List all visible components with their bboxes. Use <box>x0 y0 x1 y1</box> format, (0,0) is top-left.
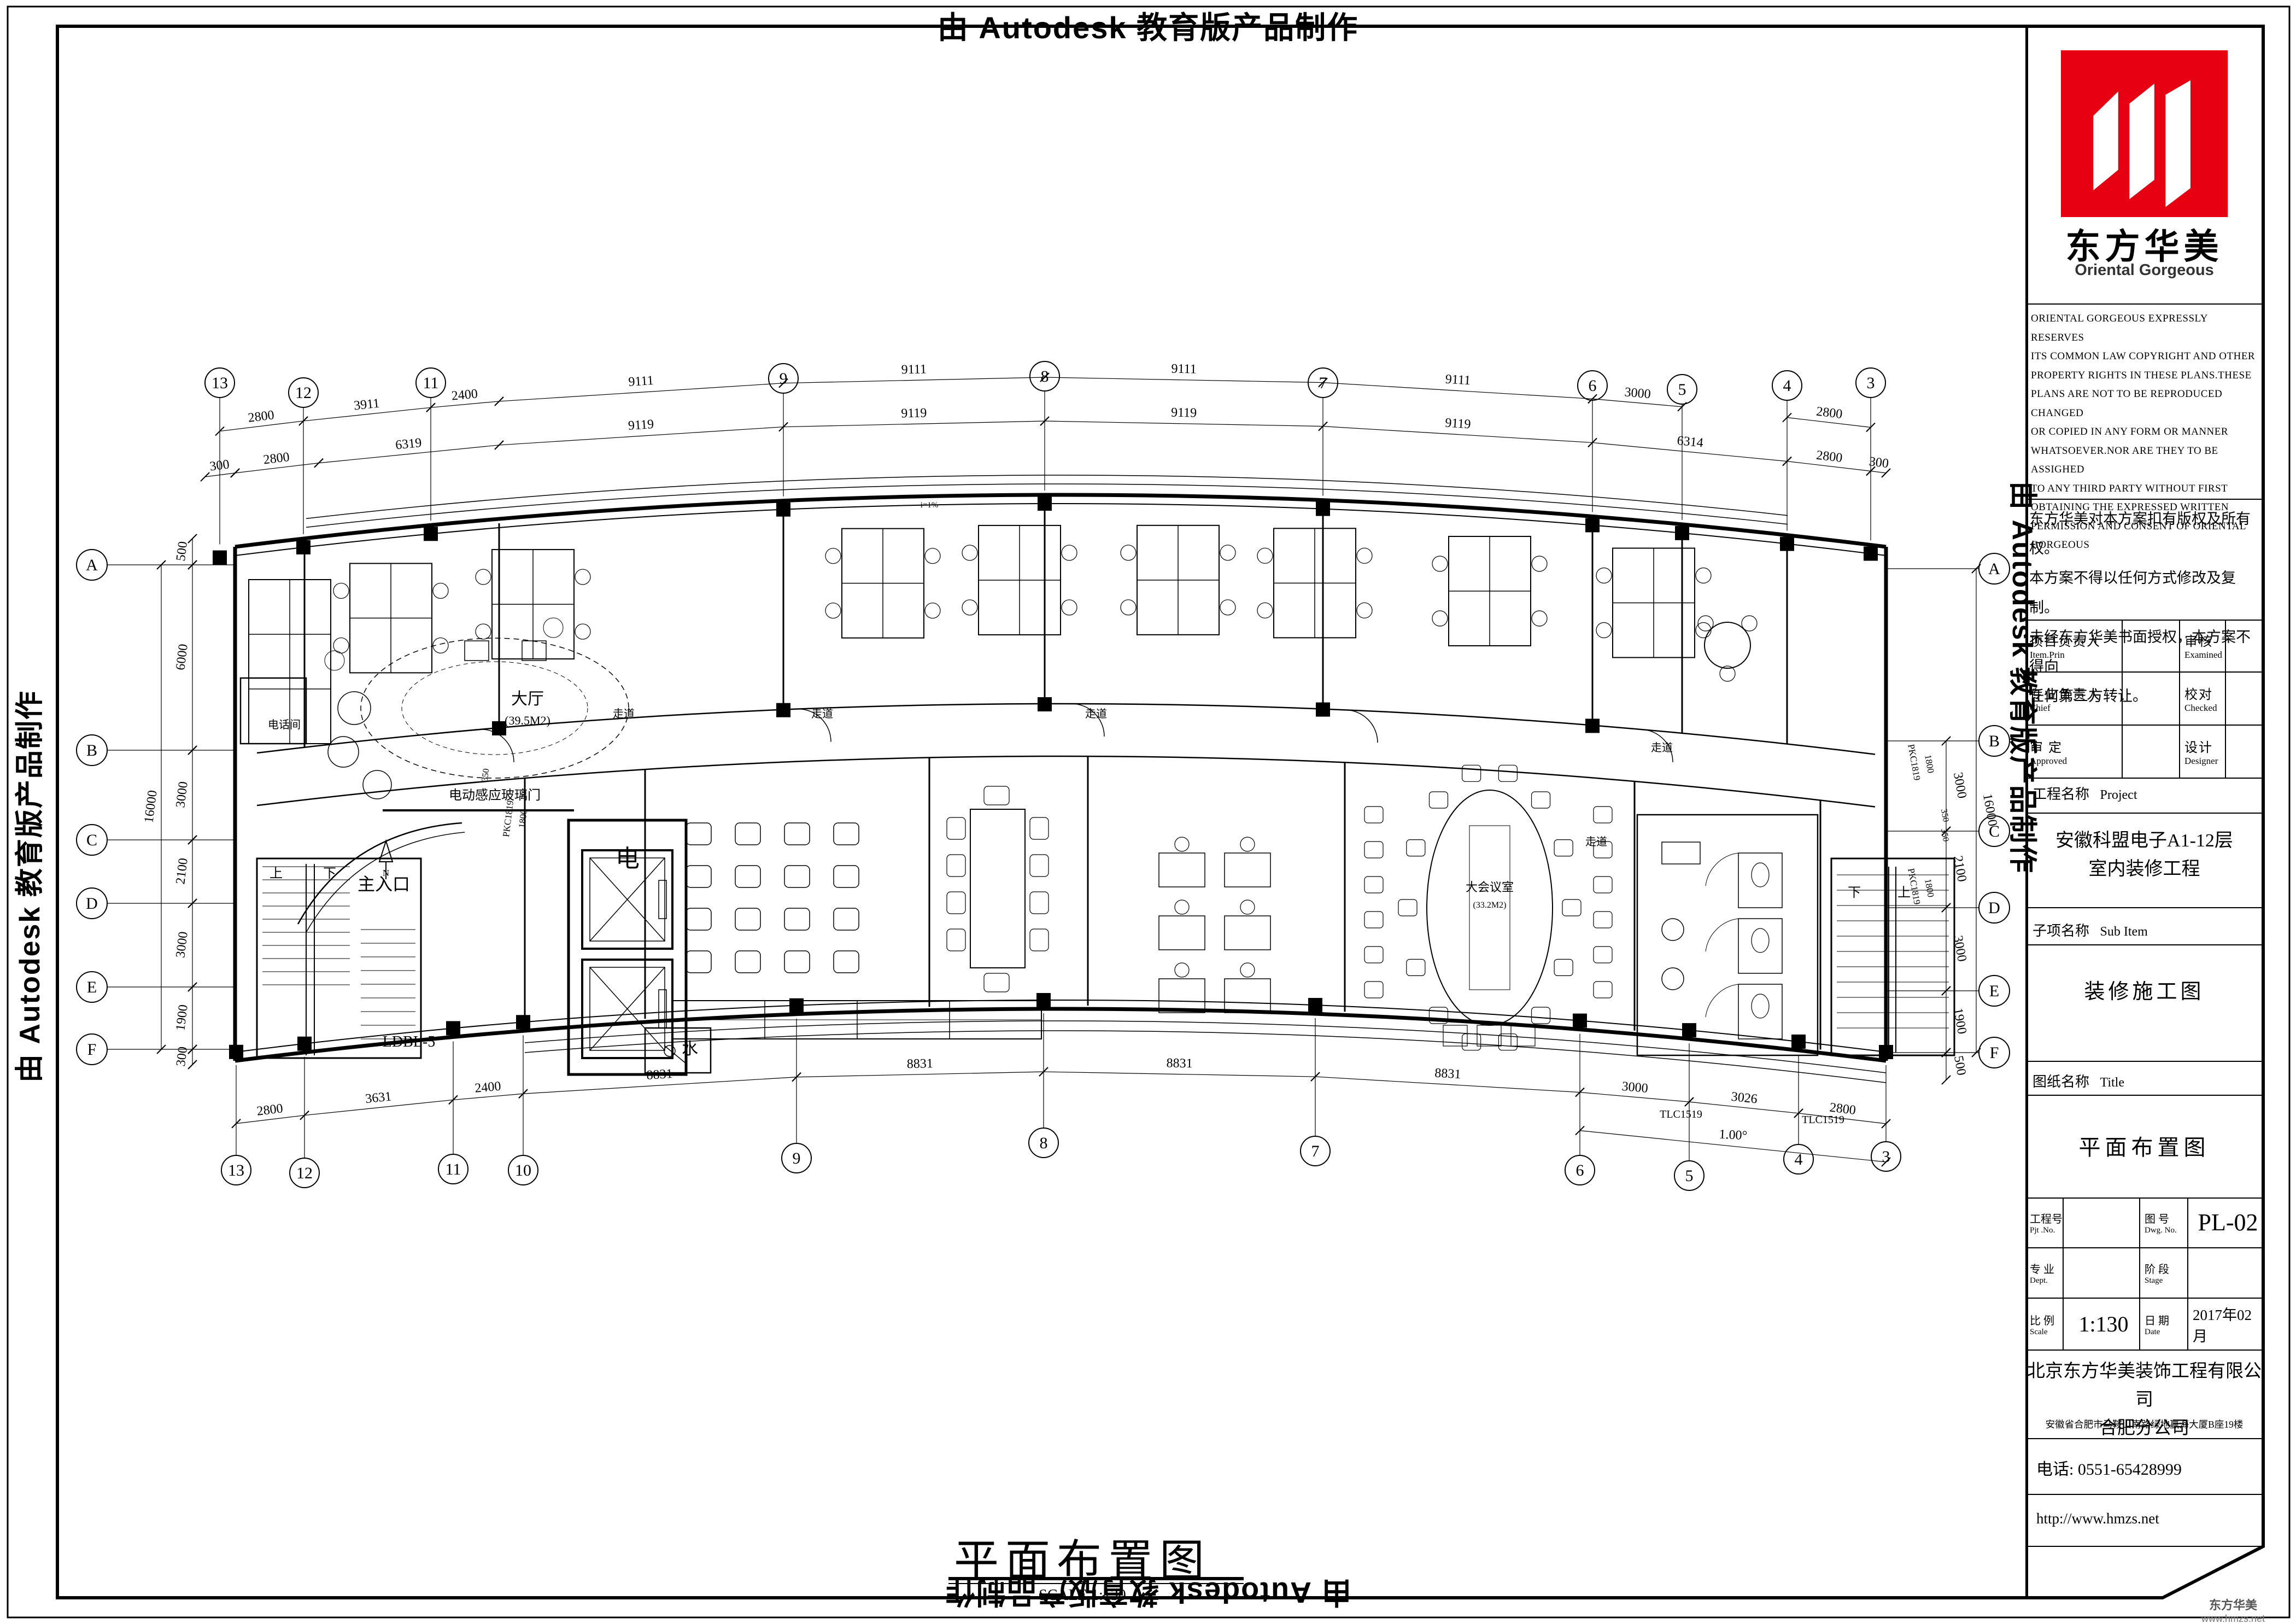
svg-text:9119: 9119 <box>901 406 927 420</box>
svg-text:4: 4 <box>1783 377 1791 395</box>
company-phone: 电话: 0551-65428999 <box>2036 1456 2182 1480</box>
svg-text:1900: 1900 <box>173 1004 191 1032</box>
svg-text:3000: 3000 <box>1951 771 1969 799</box>
svg-text:LDBL-5: LDBL-5 <box>383 1033 435 1050</box>
svg-text:2800: 2800 <box>247 408 275 425</box>
svg-text:B: B <box>1989 732 2000 750</box>
svg-text:9119: 9119 <box>628 417 654 433</box>
svg-text:5: 5 <box>1678 381 1686 399</box>
dept-stage-row: 专 业Dept. 阶 段Stage <box>2025 1248 2263 1299</box>
project-name: 安徽科盟电子A1-12层 室内装修工程 <box>2025 827 2263 884</box>
title-underline <box>948 1577 1244 1580</box>
svg-text:走道: 走道 <box>811 708 833 720</box>
furniture <box>249 525 1757 1050</box>
svg-text:电: 电 <box>616 845 640 872</box>
floor-plan: 1312119876543131211109876543ABCDEFABCDEF… <box>0 0 2296 1624</box>
scale-value: 1:130 <box>2064 1299 2140 1350</box>
logo-mark-icon <box>2061 50 2228 217</box>
svg-text:11: 11 <box>446 1160 461 1178</box>
company-logo <box>2061 50 2228 217</box>
dwg-no-row: 工程号Pjt .No. 图 号Dwg. No. PL-02 <box>2025 1197 2263 1248</box>
subitem-label: 子项名称 Sub Item <box>2033 920 2148 940</box>
svg-text:走道: 走道 <box>1085 708 1107 720</box>
company-address: 安徽省合肥市马鞍山南路绿地赢海大厦B座19楼 <box>2025 1417 2263 1431</box>
svg-text:300: 300 <box>1868 454 1889 471</box>
svg-text:E: E <box>87 978 97 996</box>
svg-text:2100: 2100 <box>1951 855 1969 883</box>
svg-text:i=1%: i=1% <box>921 501 939 510</box>
svg-text:2800: 2800 <box>256 1101 284 1119</box>
svg-text:上: 上 <box>1897 885 1911 900</box>
svg-text:PKC1819: PKC1819 <box>1906 743 1922 781</box>
svg-text:6: 6 <box>1576 1161 1584 1179</box>
svg-text:3000: 3000 <box>1624 385 1651 401</box>
svg-text:(39.5M2): (39.5M2) <box>505 714 550 727</box>
svg-text:9119: 9119 <box>1445 416 1472 432</box>
svg-text:300: 300 <box>174 1046 190 1067</box>
svg-text:1800: 1800 <box>1923 878 1936 898</box>
svg-text:3000: 3000 <box>1951 934 1969 963</box>
svg-text:大会议室: 大会议室 <box>1466 880 1514 894</box>
svg-text:9111: 9111 <box>901 362 927 377</box>
svg-text:PKC1819: PKC1819 <box>501 800 516 838</box>
svg-text:350: 350 <box>1939 808 1951 823</box>
svg-text:2100: 2100 <box>173 857 191 885</box>
svg-text:A: A <box>1988 560 2000 578</box>
svg-text:3: 3 <box>1882 1148 1890 1166</box>
svg-text:9: 9 <box>780 370 788 388</box>
svg-text:8831: 8831 <box>1166 1056 1192 1071</box>
svg-text:1800: 1800 <box>1923 754 1936 774</box>
svg-text:3000: 3000 <box>173 781 191 809</box>
svg-text:1900: 1900 <box>1951 1007 1969 1035</box>
svg-text:电话间: 电话间 <box>268 718 301 731</box>
svg-text:下: 下 <box>323 867 336 881</box>
svg-text:8831: 8831 <box>907 1056 934 1071</box>
svg-text:6319: 6319 <box>395 436 422 453</box>
svg-text:12: 12 <box>295 384 312 402</box>
svg-text:7: 7 <box>1311 1142 1320 1160</box>
company-website: http://www.hmzs.net <box>2036 1510 2159 1527</box>
svg-text:6314: 6314 <box>1677 434 1704 450</box>
svg-text:A: A <box>86 556 98 574</box>
date-value: 2017年02月 <box>2188 1299 2263 1350</box>
svg-text:2800: 2800 <box>262 450 290 468</box>
personnel-table: 项目负责人Item.Prin 审核Examined 专业负责人Chief 校对C… <box>2025 620 2263 775</box>
corner-brand: 东方华美 www.hmzs.net <box>2178 1596 2288 1624</box>
svg-text:D: D <box>1988 899 2000 917</box>
svg-text:走道: 走道 <box>1585 836 1607 848</box>
svg-text:D: D <box>86 895 98 913</box>
svg-text:8831: 8831 <box>1434 1066 1461 1082</box>
svg-text:1800: 1800 <box>517 809 529 828</box>
svg-text:大厅: 大厅 <box>511 690 544 708</box>
svg-text:B: B <box>86 741 97 760</box>
svg-text:2400: 2400 <box>451 387 478 403</box>
svg-text:2400: 2400 <box>474 1079 501 1096</box>
svg-text:5: 5 <box>1685 1167 1694 1185</box>
svg-text:13: 13 <box>228 1161 244 1179</box>
svg-text:500: 500 <box>174 541 190 562</box>
svg-text:(33.2M2): (33.2M2) <box>1473 901 1507 910</box>
drawing-number: PL-02 <box>2188 1197 2263 1247</box>
washrooms <box>1637 815 1818 1055</box>
svg-text:300: 300 <box>209 457 230 474</box>
svg-text:12: 12 <box>296 1164 313 1182</box>
svg-text:10: 10 <box>515 1161 531 1179</box>
subitem-value: 装修施工图 <box>2025 974 2263 1004</box>
drawing-scale-note: SCALE 1:130 <box>929 1587 1235 1604</box>
svg-text:2800: 2800 <box>1815 405 1843 422</box>
columns <box>213 496 1893 1059</box>
svg-text:上: 上 <box>270 866 283 881</box>
svg-text:3631: 3631 <box>365 1089 392 1106</box>
svg-text:11: 11 <box>423 374 439 392</box>
scale-date-row: 比 例Scale 1:130 日 期Date 2017年02月 <box>2025 1299 2263 1351</box>
sheet-label: 图纸名称 Title <box>2033 1071 2124 1091</box>
svg-text:F: F <box>87 1041 97 1059</box>
svg-text:走道: 走道 <box>613 708 635 720</box>
svg-text:3026: 3026 <box>1731 1090 1758 1107</box>
svg-text:16000: 16000 <box>1980 792 2000 827</box>
svg-text:350: 350 <box>481 768 491 782</box>
svg-text:8831: 8831 <box>646 1067 673 1083</box>
svg-text:N: N <box>383 868 389 878</box>
svg-text:F: F <box>1990 1044 1999 1062</box>
svg-text:9119: 9119 <box>1171 406 1197 420</box>
svg-text:8: 8 <box>1041 367 1049 385</box>
project-label: 工程名称 Project <box>2033 783 2137 803</box>
svg-text:13: 13 <box>212 374 228 392</box>
svg-text:走道: 走道 <box>1651 741 1673 754</box>
svg-text:1.00°: 1.00° <box>1719 1128 1748 1143</box>
logo-en: Oriental Gorgeous <box>2025 261 2263 279</box>
svg-text:3000: 3000 <box>1621 1079 1649 1096</box>
svg-text:2800: 2800 <box>1815 448 1843 465</box>
svg-text:6000: 6000 <box>173 643 191 671</box>
svg-text:3911: 3911 <box>353 396 380 413</box>
svg-text:500: 500 <box>1951 1055 1969 1077</box>
title-underline-2 <box>948 1583 1244 1584</box>
svg-text:9111: 9111 <box>628 373 654 389</box>
svg-text:9: 9 <box>793 1149 801 1167</box>
svg-text:350: 350 <box>1939 828 1951 843</box>
svg-text:下: 下 <box>1848 886 1861 900</box>
drawing-sheet: 由 Autodesk 教育版产品制作 由 Autodesk 教育版产品制作 由 … <box>0 0 2296 1624</box>
sheet-value: 平面布置图 <box>2025 1130 2263 1161</box>
svg-text:6: 6 <box>1589 377 1597 395</box>
svg-text:TLC1519: TLC1519 <box>1660 1108 1702 1120</box>
svg-text:TLC1519: TLC1519 <box>1802 1114 1844 1126</box>
svg-text:9111: 9111 <box>1171 362 1197 377</box>
svg-text:8: 8 <box>1040 1134 1048 1152</box>
svg-text:C: C <box>86 831 97 849</box>
svg-text:电动感应玻璃门: 电动感应玻璃门 <box>449 788 541 803</box>
svg-text:3: 3 <box>1867 374 1875 392</box>
svg-text:3000: 3000 <box>173 931 191 959</box>
svg-text:16000: 16000 <box>142 790 160 824</box>
svg-text:9111: 9111 <box>1445 372 1471 388</box>
svg-text:水: 水 <box>682 1040 698 1058</box>
svg-text:E: E <box>1989 982 1999 1000</box>
